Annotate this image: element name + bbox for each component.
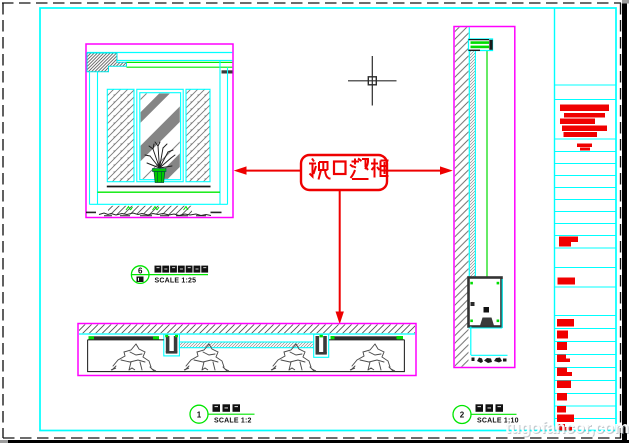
svg-text:tugofancor,com: tugofancor,com bbox=[505, 419, 629, 437]
svg-text:SCALE 1:25: SCALE 1:25 bbox=[155, 278, 197, 285]
svg-text:1: 1 bbox=[197, 410, 202, 419]
svg-text:2: 2 bbox=[460, 411, 465, 420]
svg-text:SCALE 1:2: SCALE 1:2 bbox=[214, 417, 252, 424]
